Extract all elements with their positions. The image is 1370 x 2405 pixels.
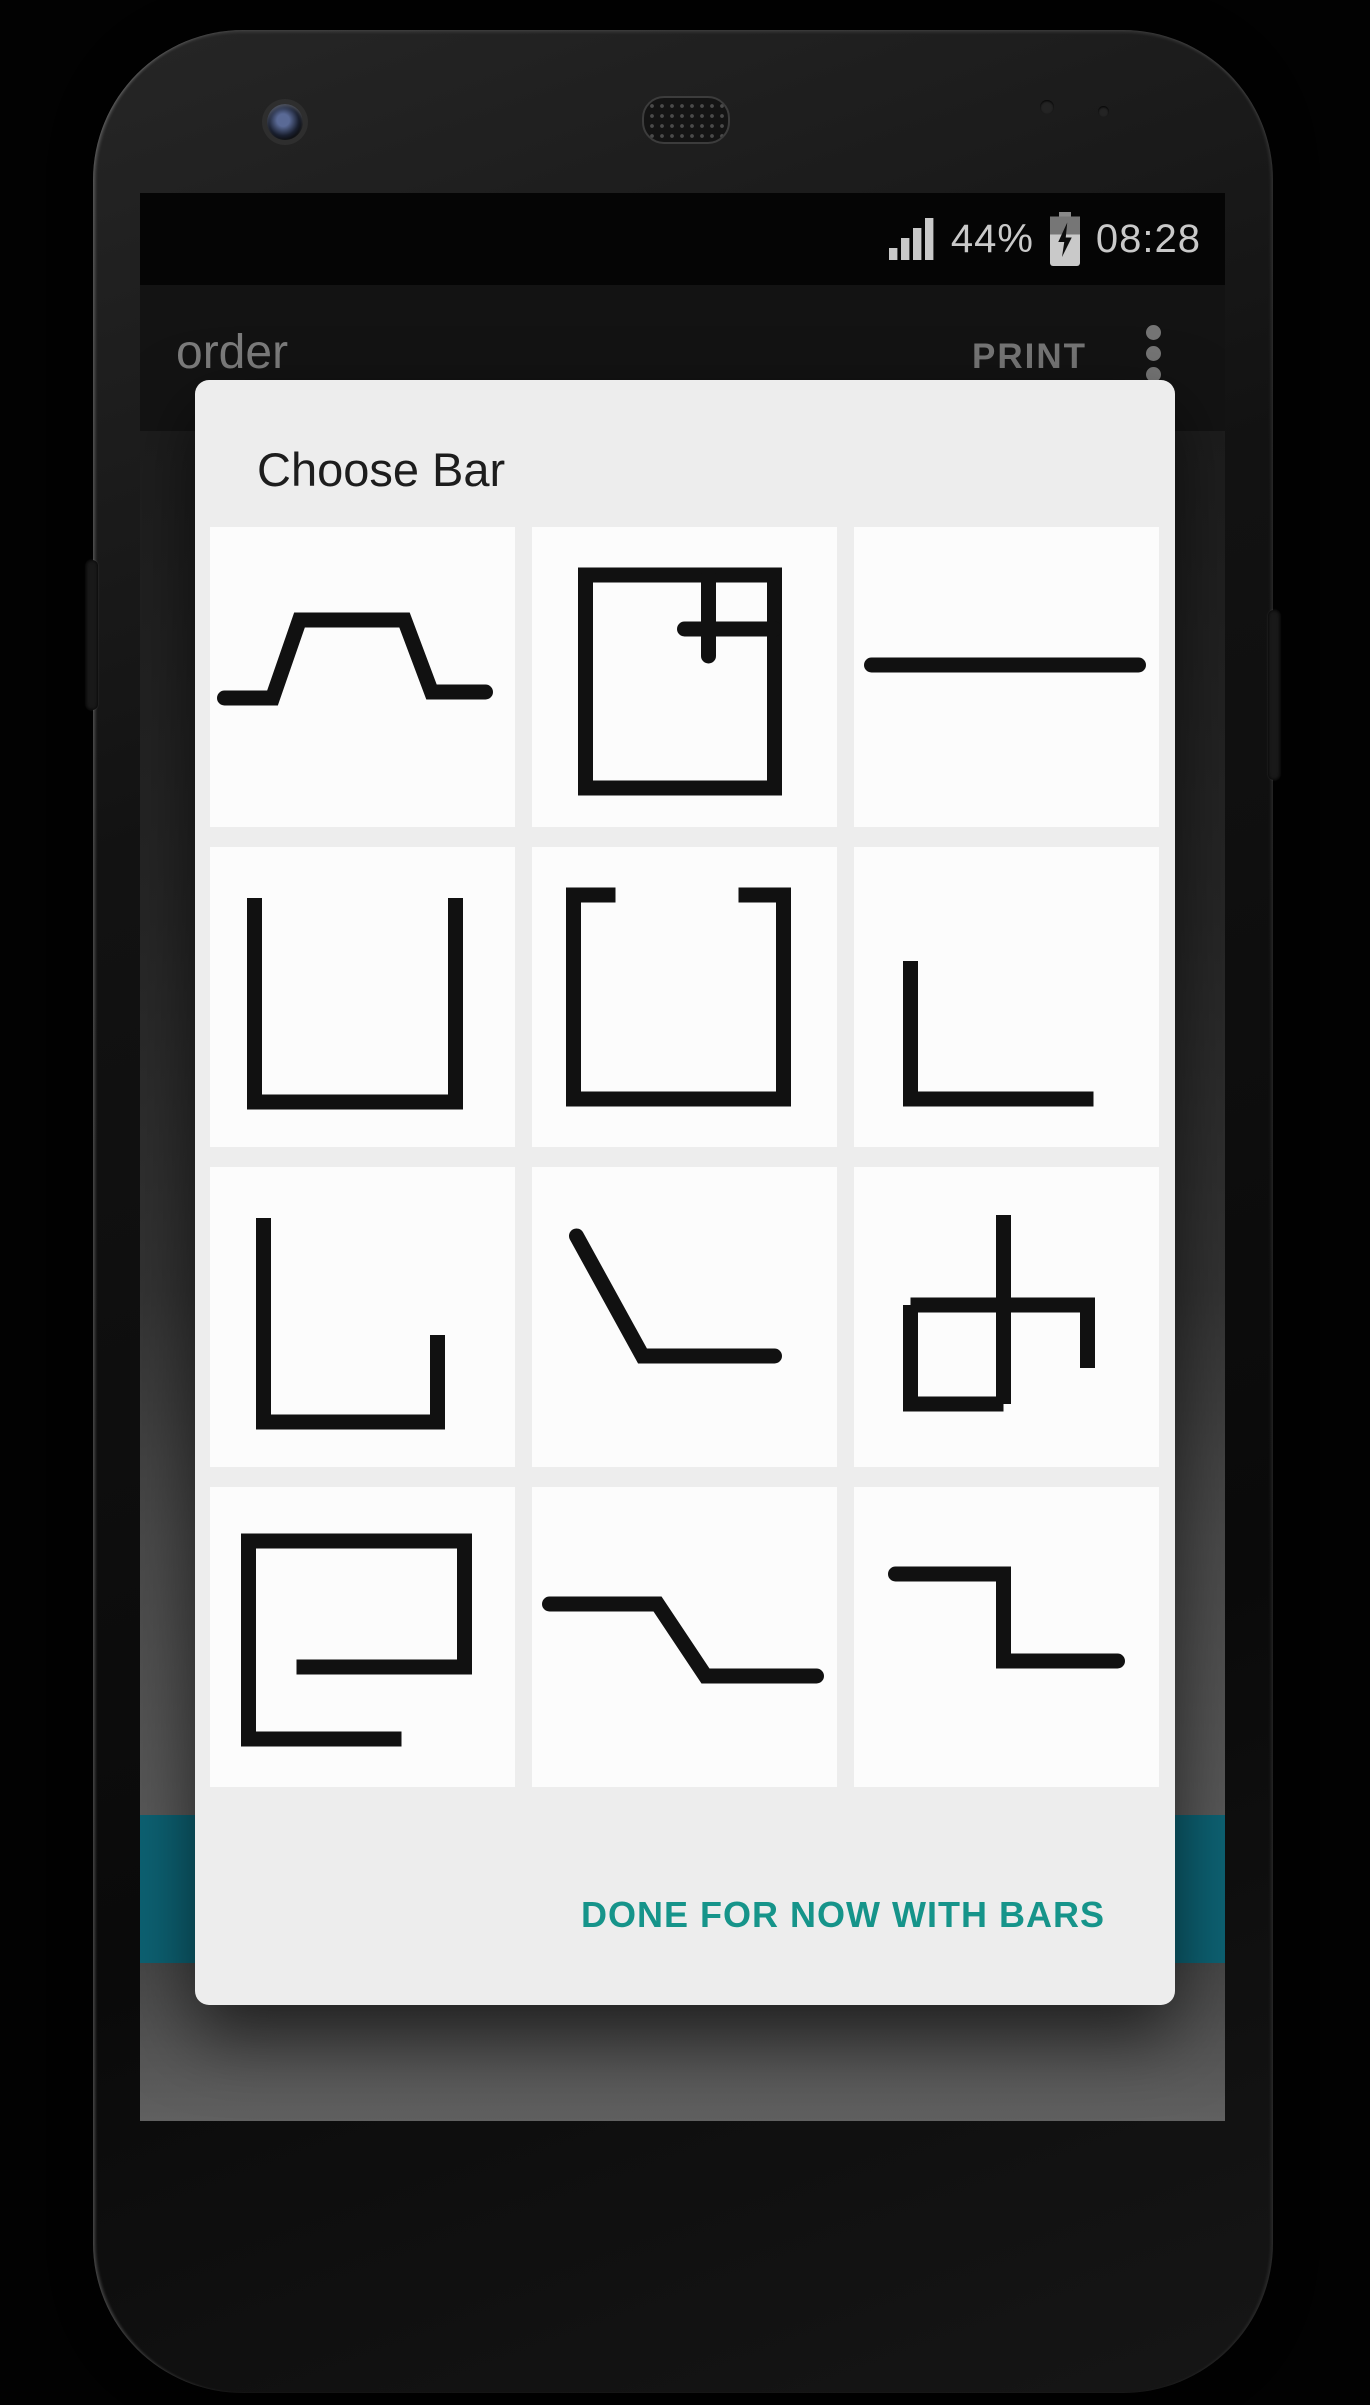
choose-bar-dialog: Choose Bar DONE FOR NOW WITH BARS <box>195 380 1175 2005</box>
bar-option-low-corner[interactable] <box>854 847 1159 1147</box>
flat-slope-flat-icon <box>532 1487 837 1787</box>
clock: 08:28 <box>1096 217 1201 262</box>
boxed-corner-cross-icon <box>532 527 837 827</box>
ambient-light-sensor-icon <box>1098 106 1109 117</box>
bar-option-slope-then-flat[interactable] <box>532 1167 837 1467</box>
tub-short-right-icon <box>210 1167 515 1467</box>
print-button[interactable]: PRINT <box>972 337 1087 377</box>
bar-option-step-down[interactable] <box>854 1487 1159 1787</box>
signal-strength-icon <box>889 218 937 260</box>
front-camera-icon <box>267 104 303 140</box>
done-button[interactable]: DONE FOR NOW WITH BARS <box>581 1869 1105 1961</box>
page-title: order <box>176 325 288 380</box>
bar-option-inward-spiral[interactable] <box>210 1487 515 1787</box>
bar-option-open-top-box[interactable] <box>210 847 515 1147</box>
bar-grid <box>210 527 1159 1787</box>
bar-option-plateau[interactable] <box>210 527 515 827</box>
canvas: 44% 08:28 order PRINT Choose Bar <box>0 0 1370 2405</box>
plateau-icon <box>210 527 515 827</box>
bar-option-horizontal-line[interactable] <box>854 527 1159 827</box>
power-button <box>1268 610 1280 780</box>
screen: 44% 08:28 order PRINT Choose Bar <box>140 193 1225 2121</box>
horizontal-line-icon <box>854 527 1159 827</box>
bar-option-box-stem-hook[interactable] <box>854 1167 1159 1467</box>
bar-option-open-top-box-lips[interactable] <box>532 847 837 1147</box>
battery-charging-icon <box>1048 212 1082 266</box>
proximity-sensor-icon <box>1040 100 1054 114</box>
open-top-box-icon <box>210 847 515 1147</box>
step-down-icon <box>854 1487 1159 1787</box>
status-bar: 44% 08:28 <box>140 193 1225 285</box>
earpiece-speaker-icon <box>642 96 730 144</box>
slope-then-flat-icon <box>532 1167 837 1467</box>
inward-spiral-icon <box>210 1487 515 1787</box>
bar-option-boxed-corner-cross[interactable] <box>532 527 837 827</box>
low-corner-icon <box>854 847 1159 1147</box>
phone-frame: 44% 08:28 order PRINT Choose Bar <box>93 30 1273 2393</box>
bar-option-flat-slope-flat[interactable] <box>532 1487 837 1787</box>
box-stem-hook-icon <box>854 1167 1159 1467</box>
battery-percent: 44% <box>951 217 1034 262</box>
open-top-box-lips-icon <box>532 847 837 1147</box>
bar-option-tub-short-right[interactable] <box>210 1167 515 1467</box>
dialog-title: Choose Bar <box>257 442 505 497</box>
volume-button <box>86 560 98 710</box>
